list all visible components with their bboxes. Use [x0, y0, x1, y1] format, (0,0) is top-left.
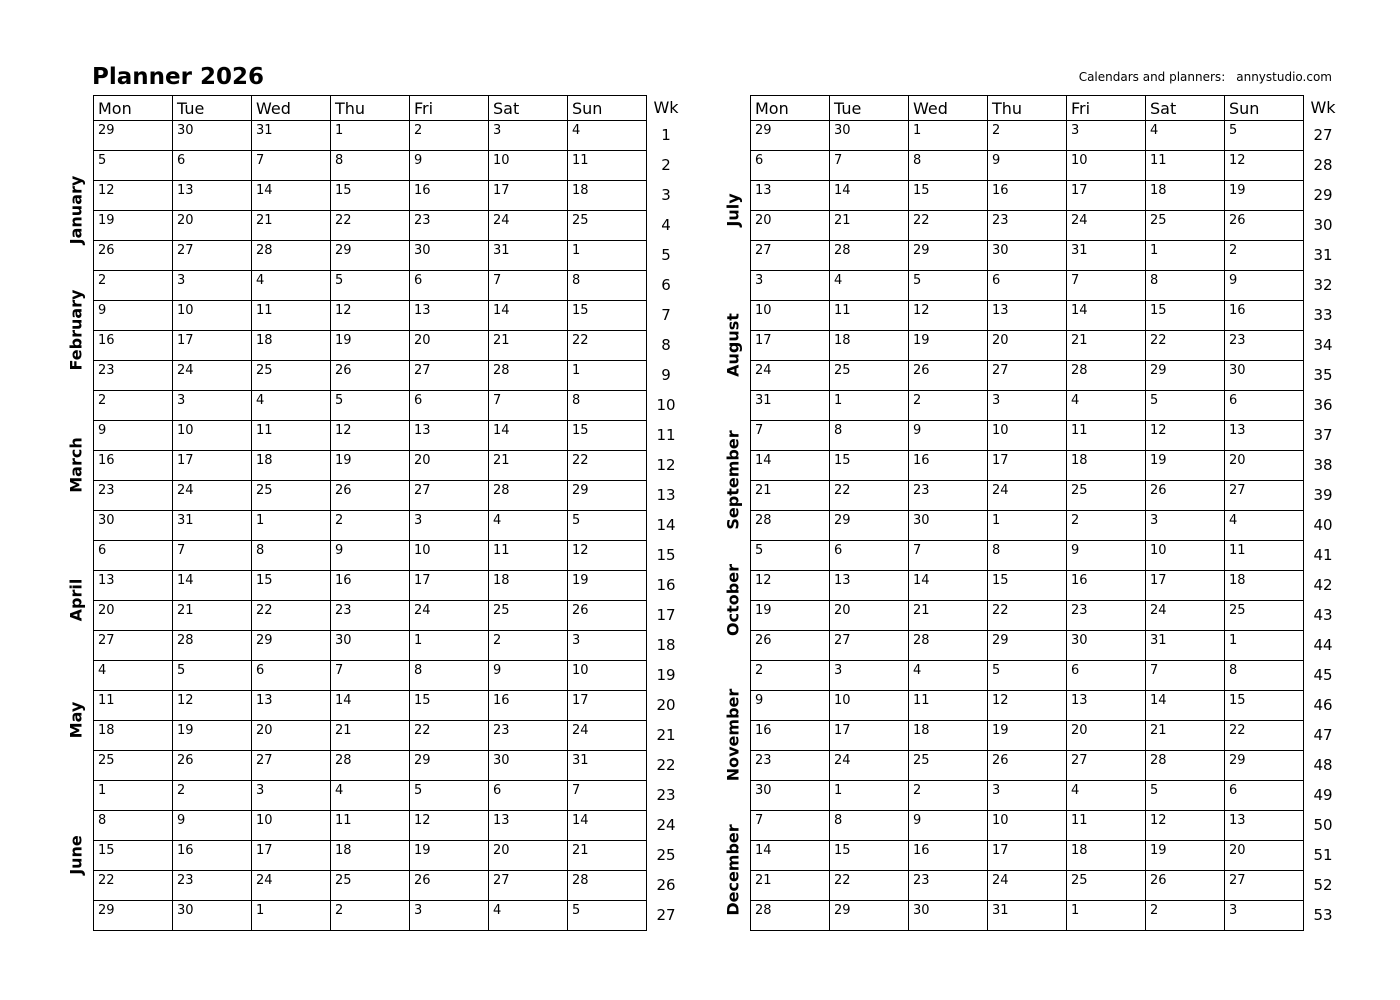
week-number: 4: [648, 210, 684, 240]
month-label-text: June: [67, 835, 86, 875]
day-cell: 27: [1067, 751, 1146, 781]
day-cell: 27: [173, 241, 252, 271]
day-cell: 24: [751, 361, 830, 391]
week-row: 20212223242526: [751, 211, 1304, 241]
day-cell: 16: [94, 451, 173, 481]
day-cell: 1: [252, 511, 331, 541]
day-cell: 17: [1067, 181, 1146, 211]
day-cell: 31: [988, 901, 1067, 931]
day-cell: 23: [489, 721, 568, 751]
day-cell: 20: [1225, 451, 1304, 481]
week-number: 32: [1305, 270, 1341, 300]
day-cell: 29: [94, 121, 173, 151]
day-cell: 5: [173, 661, 252, 691]
day-cell: 2: [331, 511, 410, 541]
day-cell: 15: [252, 571, 331, 601]
day-cell: 1: [568, 361, 647, 391]
day-cell: 6: [830, 541, 909, 571]
day-cell: 28: [568, 871, 647, 901]
day-cell: 4: [489, 511, 568, 541]
week-number: 14: [648, 510, 684, 540]
day-cell: 14: [489, 301, 568, 331]
day-cell: 6: [1225, 391, 1304, 421]
week-number: 10: [648, 390, 684, 420]
day-cell: 21: [751, 481, 830, 511]
week-number: 27: [648, 900, 684, 930]
day-cell: 27: [988, 361, 1067, 391]
day-cell: 19: [988, 721, 1067, 751]
day-cell: 11: [1146, 151, 1225, 181]
week-row: 14151617181920: [751, 841, 1304, 871]
day-cell: 13: [173, 181, 252, 211]
day-cell: 19: [331, 451, 410, 481]
day-cell: 20: [489, 841, 568, 871]
day-cell: 8: [1225, 661, 1304, 691]
day-cell: 29: [1225, 751, 1304, 781]
day-cell: 8: [331, 151, 410, 181]
day-cell: 18: [252, 331, 331, 361]
calendar-first-half: JanuaryFebruaryMarchAprilMayJuneMonTueWe…: [93, 95, 693, 935]
day-cell: 2: [909, 781, 988, 811]
day-cell: 31: [173, 511, 252, 541]
day-cell: 8: [830, 421, 909, 451]
day-cell: 2: [1146, 901, 1225, 931]
day-cell: 2: [751, 661, 830, 691]
week-number: 15: [648, 540, 684, 570]
day-cell: 14: [1067, 301, 1146, 331]
week-row: 21222324252627: [751, 481, 1304, 511]
day-cell: 13: [1225, 421, 1304, 451]
day-cell: 5: [331, 391, 410, 421]
day-cell: 17: [568, 691, 647, 721]
day-cell: 26: [1146, 871, 1225, 901]
day-cell: 4: [331, 781, 410, 811]
week-number: 22: [648, 750, 684, 780]
day-cell: 10: [252, 811, 331, 841]
day-cell: 20: [252, 721, 331, 751]
week-number: 38: [1305, 450, 1341, 480]
day-cell: 23: [909, 481, 988, 511]
day-cell: 3: [568, 631, 647, 661]
week-number: 3: [648, 180, 684, 210]
week-number: 41: [1305, 540, 1341, 570]
calendar-second-half: JulyAugustSeptemberOctoberNovemberDecemb…: [750, 95, 1350, 935]
day-cell: 12: [331, 421, 410, 451]
week-row: 78910111213: [751, 811, 1304, 841]
day-cell: 24: [489, 211, 568, 241]
day-cell: 20: [830, 601, 909, 631]
day-cell: 5: [1146, 781, 1225, 811]
day-cell: 7: [751, 421, 830, 451]
day-cell: 26: [94, 241, 173, 271]
week-row: 22232425262728: [94, 871, 647, 901]
day-cell: 24: [988, 871, 1067, 901]
day-cell: 26: [1146, 481, 1225, 511]
day-cell: 20: [988, 331, 1067, 361]
day-cell: 10: [751, 301, 830, 331]
day-cell: 19: [94, 211, 173, 241]
weekday-header-row: MonTueWedThuFriSatSun: [751, 96, 1304, 121]
week-number: 29: [1305, 180, 1341, 210]
day-cell: 2: [988, 121, 1067, 151]
day-header-wed: Wed: [909, 96, 988, 121]
day-cell: 9: [1225, 271, 1304, 301]
week-row: 2627282930311: [94, 241, 647, 271]
week-row: 2627282930311: [751, 631, 1304, 661]
day-cell: 11: [909, 691, 988, 721]
day-cell: 22: [988, 601, 1067, 631]
day-cell: 14: [173, 571, 252, 601]
day-cell: 21: [1067, 331, 1146, 361]
day-cell: 12: [331, 301, 410, 331]
day-cell: 25: [331, 871, 410, 901]
month-label-text: January: [67, 176, 86, 245]
week-number: 40: [1305, 510, 1341, 540]
week-number: 8: [648, 330, 684, 360]
month-label-text: April: [67, 579, 86, 622]
day-cell: 18: [331, 841, 410, 871]
day-cell: 30: [94, 511, 173, 541]
day-cell: 4: [489, 901, 568, 931]
day-header-sat: Sat: [1146, 96, 1225, 121]
week-row: 27282930123: [94, 631, 647, 661]
day-cell: 8: [568, 391, 647, 421]
week-row: 2930311234: [94, 121, 647, 151]
day-cell: 17: [410, 571, 489, 601]
week-column-header: Wk: [648, 95, 684, 120]
day-cell: 12: [988, 691, 1067, 721]
day-cell: 1: [94, 781, 173, 811]
day-cell: 1: [1067, 901, 1146, 931]
day-cell: 25: [252, 481, 331, 511]
day-cell: 17: [830, 721, 909, 751]
week-number: 50: [1305, 810, 1341, 840]
day-cell: 24: [410, 601, 489, 631]
week-number: 39: [1305, 480, 1341, 510]
day-cell: 13: [410, 301, 489, 331]
week-number: 28: [1305, 150, 1341, 180]
day-cell: 14: [331, 691, 410, 721]
day-cell: 24: [252, 871, 331, 901]
week-row: 11121314151617: [94, 691, 647, 721]
month-label-text: December: [724, 824, 743, 915]
day-cell: 19: [1146, 451, 1225, 481]
day-cell: 18: [1225, 571, 1304, 601]
day-cell: 30: [909, 511, 988, 541]
day-cell: 6: [751, 151, 830, 181]
day-cell: 1: [1146, 241, 1225, 271]
day-cell: 11: [331, 811, 410, 841]
day-cell: 29: [568, 481, 647, 511]
week-row: 19202122232425: [751, 601, 1304, 631]
day-cell: 20: [751, 211, 830, 241]
day-header-fri: Fri: [1067, 96, 1146, 121]
day-cell: 18: [1067, 451, 1146, 481]
day-cell: 4: [830, 271, 909, 301]
day-cell: 9: [1067, 541, 1146, 571]
day-cell: 6: [94, 541, 173, 571]
week-row: 24252627282930: [751, 361, 1304, 391]
day-cell: 30: [1067, 631, 1146, 661]
day-cell: 4: [1225, 511, 1304, 541]
day-cell: 31: [489, 241, 568, 271]
day-cell: 22: [410, 721, 489, 751]
day-cell: 28: [751, 901, 830, 931]
week-number-column: Wk27282930313233343536373839404142434445…: [1305, 95, 1341, 930]
day-cell: 23: [173, 871, 252, 901]
day-cell: 13: [252, 691, 331, 721]
week-number: 17: [648, 600, 684, 630]
month-label-text: August: [724, 313, 743, 377]
day-cell: 16: [94, 331, 173, 361]
day-cell: 27: [94, 631, 173, 661]
week-number: 20: [648, 690, 684, 720]
day-cell: 24: [173, 481, 252, 511]
day-cell: 1: [988, 511, 1067, 541]
day-header-sun: Sun: [568, 96, 647, 121]
day-cell: 31: [252, 121, 331, 151]
day-cell: 21: [489, 451, 568, 481]
day-cell: 25: [1225, 601, 1304, 631]
week-row: 1234567: [94, 781, 647, 811]
day-cell: 2: [1067, 511, 1146, 541]
week-number: 1: [648, 120, 684, 150]
week-number: 43: [1305, 600, 1341, 630]
day-cell: 17: [173, 451, 252, 481]
week-number: 23: [648, 780, 684, 810]
day-header-sat: Sat: [489, 96, 568, 121]
day-cell: 5: [751, 541, 830, 571]
day-cell: 10: [988, 811, 1067, 841]
day-cell: 30: [410, 241, 489, 271]
day-cell: 14: [489, 421, 568, 451]
day-cell: 8: [410, 661, 489, 691]
day-cell: 30: [331, 631, 410, 661]
day-cell: 30: [1225, 361, 1304, 391]
week-row: 272829303112: [751, 241, 1304, 271]
day-cell: 4: [94, 661, 173, 691]
week-row: 20212223242526: [94, 601, 647, 631]
week-number: 2: [648, 150, 684, 180]
month-label-text: May: [67, 702, 86, 739]
day-cell: 5: [331, 271, 410, 301]
day-cell: 10: [489, 151, 568, 181]
day-cell: 9: [173, 811, 252, 841]
day-cell: 3: [830, 661, 909, 691]
day-cell: 25: [1067, 481, 1146, 511]
day-cell: 26: [331, 481, 410, 511]
day-cell: 28: [173, 631, 252, 661]
week-number: 44: [1305, 630, 1341, 660]
day-cell: 25: [1146, 211, 1225, 241]
day-cell: 30: [173, 121, 252, 151]
day-cell: 11: [568, 151, 647, 181]
week-row: 30123456: [751, 781, 1304, 811]
day-cell: 14: [830, 181, 909, 211]
day-cell: 22: [568, 331, 647, 361]
day-cell: 10: [568, 661, 647, 691]
day-cell: 28: [489, 361, 568, 391]
week-row: 9101112131415: [751, 691, 1304, 721]
day-cell: 2: [331, 901, 410, 931]
day-cell: 20: [410, 451, 489, 481]
day-cell: 19: [331, 331, 410, 361]
day-cell: 27: [410, 361, 489, 391]
day-cell: 5: [410, 781, 489, 811]
week-row: 14151617181920: [751, 451, 1304, 481]
day-cell: 11: [252, 301, 331, 331]
day-cell: 5: [1225, 121, 1304, 151]
day-cell: 9: [331, 541, 410, 571]
day-cell: 22: [1146, 331, 1225, 361]
day-cell: 10: [410, 541, 489, 571]
week-number: 18: [648, 630, 684, 660]
day-cell: 3: [988, 391, 1067, 421]
day-cell: 4: [1067, 781, 1146, 811]
day-cell: 11: [1067, 811, 1146, 841]
week-number: 46: [1305, 690, 1341, 720]
day-header-mon: Mon: [751, 96, 830, 121]
day-cell: 15: [410, 691, 489, 721]
day-cell: 15: [94, 841, 173, 871]
day-cell: 5: [1146, 391, 1225, 421]
week-number: 52: [1305, 870, 1341, 900]
day-cell: 1: [252, 901, 331, 931]
day-cell: 9: [751, 691, 830, 721]
week-number: 33: [1305, 300, 1341, 330]
day-cell: 17: [489, 181, 568, 211]
day-cell: 29: [331, 241, 410, 271]
day-cell: 14: [252, 181, 331, 211]
day-cell: 26: [909, 361, 988, 391]
week-column-header: Wk: [1305, 95, 1341, 120]
day-cell: 24: [173, 361, 252, 391]
day-header-fri: Fri: [410, 96, 489, 121]
month-label-text: November: [724, 689, 743, 782]
day-cell: 2: [489, 631, 568, 661]
week-number: 9: [648, 360, 684, 390]
week-row: 13141516171819: [751, 181, 1304, 211]
day-cell: 11: [1225, 541, 1304, 571]
day-cell: 6: [410, 271, 489, 301]
week-number: 7: [648, 300, 684, 330]
day-cell: 9: [489, 661, 568, 691]
day-cell: 26: [751, 631, 830, 661]
day-cell: 22: [568, 451, 647, 481]
week-number: 5: [648, 240, 684, 270]
week-row: 293012345: [94, 901, 647, 931]
day-cell: 15: [1146, 301, 1225, 331]
day-header-tue: Tue: [830, 96, 909, 121]
day-cell: 27: [252, 751, 331, 781]
day-cell: 7: [331, 661, 410, 691]
day-cell: 1: [331, 121, 410, 151]
day-cell: 8: [94, 811, 173, 841]
day-cell: 7: [489, 391, 568, 421]
day-cell: 13: [1225, 811, 1304, 841]
day-cell: 2: [94, 391, 173, 421]
day-cell: 7: [909, 541, 988, 571]
week-row: 16171819202122: [751, 721, 1304, 751]
day-cell: 4: [252, 391, 331, 421]
day-cell: 7: [830, 151, 909, 181]
day-cell: 2: [1225, 241, 1304, 271]
day-cell: 1: [830, 391, 909, 421]
week-row: 31123456: [751, 391, 1304, 421]
day-cell: 25: [830, 361, 909, 391]
day-cell: 22: [252, 601, 331, 631]
day-cell: 12: [568, 541, 647, 571]
day-cell: 12: [410, 811, 489, 841]
day-cell: 21: [173, 601, 252, 631]
day-cell: 25: [909, 751, 988, 781]
day-cell: 12: [173, 691, 252, 721]
day-cell: 4: [568, 121, 647, 151]
day-cell: 10: [173, 421, 252, 451]
day-cell: 29: [94, 901, 173, 931]
day-cell: 8: [1146, 271, 1225, 301]
day-cell: 22: [830, 871, 909, 901]
day-cell: 19: [1225, 181, 1304, 211]
day-cell: 21: [489, 331, 568, 361]
day-cell: 24: [830, 751, 909, 781]
day-cell: 21: [568, 841, 647, 871]
day-cell: 12: [1146, 421, 1225, 451]
week-number: 31: [1305, 240, 1341, 270]
day-cell: 7: [751, 811, 830, 841]
day-cell: 13: [410, 421, 489, 451]
day-cell: 6: [173, 151, 252, 181]
day-cell: 14: [1146, 691, 1225, 721]
day-cell: 6: [988, 271, 1067, 301]
day-cell: 23: [988, 211, 1067, 241]
day-cell: 26: [410, 871, 489, 901]
week-row: 567891011: [94, 151, 647, 181]
week-row: 19202122232425: [94, 211, 647, 241]
credit-label: Calendars and planners:: [1079, 70, 1226, 84]
day-cell: 27: [830, 631, 909, 661]
day-cell: 29: [252, 631, 331, 661]
day-cell: 7: [252, 151, 331, 181]
day-cell: 7: [1146, 661, 1225, 691]
month-label-text: February: [67, 290, 86, 371]
day-cell: 28: [1067, 361, 1146, 391]
day-cell: 11: [489, 541, 568, 571]
day-cell: 3: [988, 781, 1067, 811]
week-number: 53: [1305, 900, 1341, 930]
calendar-grid: MonTueWedThuFriSatSun2930123456789101112…: [750, 95, 1304, 931]
day-cell: 4: [909, 661, 988, 691]
week-row: 9101112131415: [94, 301, 647, 331]
day-cell: 18: [489, 571, 568, 601]
day-cell: 23: [751, 751, 830, 781]
day-cell: 29: [751, 121, 830, 151]
day-cell: 8: [988, 541, 1067, 571]
day-cell: 20: [410, 331, 489, 361]
day-cell: 13: [830, 571, 909, 601]
day-cell: 21: [331, 721, 410, 751]
day-cell: 3: [1146, 511, 1225, 541]
week-row: 10111213141516: [751, 301, 1304, 331]
week-row: 567891011: [751, 541, 1304, 571]
day-cell: 14: [568, 811, 647, 841]
day-cell: 17: [988, 451, 1067, 481]
day-cell: 20: [173, 211, 252, 241]
day-cell: 12: [1146, 811, 1225, 841]
day-cell: 8: [252, 541, 331, 571]
day-cell: 25: [489, 601, 568, 631]
day-cell: 16: [173, 841, 252, 871]
